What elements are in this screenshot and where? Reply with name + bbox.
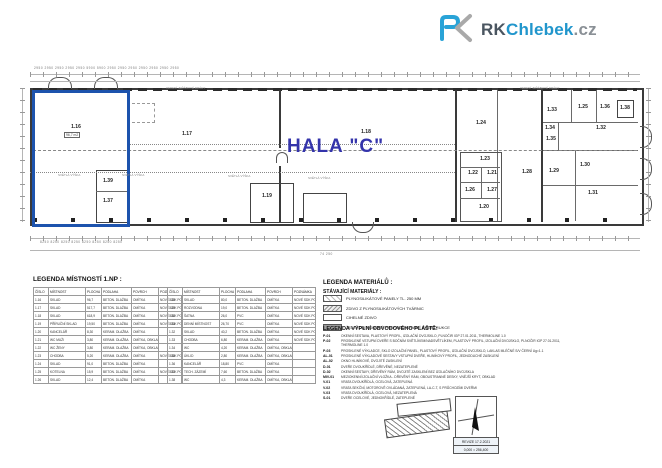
- table-cell: OMÍTKA, OBKLAD: [132, 344, 159, 352]
- table-row: 1.26SKLAD12,4BETON. DLAŽBAOMÍTKA: [34, 376, 182, 384]
- table-row: 1.34WC4,20KERAM. DLAŽBAOMÍTKA, OBKLAD: [168, 344, 316, 352]
- fills-list: P-01OKENNÍ SESTAVA, PLASTOVÝ PROFIL, IZO…: [323, 334, 573, 402]
- table-cell: OMÍTKA, OBKLAD: [266, 376, 293, 384]
- table-cell: 1.34: [168, 344, 183, 352]
- table-cell: SKLAD: [49, 376, 86, 384]
- room-label: 1.18: [361, 129, 371, 135]
- table-cell: SKLAD: [49, 296, 86, 304]
- fill-item: AL-01PROSKLENÉ VÝKLADOVÉ SESTAVY VSTUPNÍ…: [323, 354, 573, 358]
- fill-code: V-02: [323, 386, 337, 390]
- floorplan-page: RKChlebek.cz HALA "C" 96,7 m2 1.: [0, 0, 662, 468]
- wall: [460, 167, 500, 168]
- fill-desc: DVEŘE DVOUKŘÍDLÉ, DŘEVĚNÉ, NEZATEPLENÉ: [341, 365, 418, 369]
- table-cell: SKLAD: [49, 360, 86, 368]
- fill-code: V-03: [323, 391, 337, 395]
- fill-item: P-01OKENNÍ SESTAVA, PLASTOVÝ PROFIL, IZO…: [323, 334, 573, 338]
- table-cell: OMÍTKA, OBKLAD: [266, 344, 293, 352]
- rkchlebek-logo[interactable]: RKChlebek.cz: [437, 12, 597, 48]
- table-cell: KANCELÁŘ: [49, 328, 86, 336]
- level-datum-label: 0,000 = 256,400: [453, 445, 499, 454]
- table-row: 1.32SKLAD40,2BETON. DLAŽBAOMÍTKANOVÉ SDK…: [168, 328, 316, 336]
- fill-code: P-01: [323, 334, 337, 338]
- table-cell: NOVÉ SDK PODHL.: [293, 312, 316, 320]
- table-cell: OMÍTKA: [132, 296, 159, 304]
- table-cell: ŠATNA: [183, 312, 220, 320]
- room-label: 1.24: [476, 120, 486, 126]
- wall: [571, 90, 572, 122]
- table-row: 1.31DENNÍ MÍSTNOST26,70PVCOMÍTKANOVÉ SDK…: [168, 320, 316, 328]
- table-cell: 7,60: [220, 368, 236, 376]
- table-cell: WC MUŽI: [49, 336, 86, 344]
- table-cell: 1.35: [168, 352, 183, 360]
- wall: [596, 90, 597, 122]
- table-cell: BETON. DLAŽBA: [236, 328, 266, 336]
- table-row: 1.20KANCELÁŘ8,30KERAM. DLAŽBAOMÍTKA: [34, 328, 182, 336]
- table-row: 1.38WC4,3KERAM. DLAŽBAOMÍTKA, OBKLAD: [168, 376, 316, 384]
- wall: [460, 198, 500, 199]
- room-label: 1.33: [547, 107, 557, 113]
- plan-note: VEDENÍ JEŘÁBOVÉ DRÁHY: [520, 86, 559, 90]
- rooms-col-header: ČÍSLO: [168, 288, 183, 296]
- fill-item: V-03VRATA DVOUKŘÍDLÁ, OCELOVÁ, NEZATEPLE…: [323, 391, 573, 395]
- material-swatch: [323, 295, 342, 302]
- table-cell: 18,80: [220, 360, 236, 368]
- table-row: 1.21WC MUŽI3,80KERAM. DLAŽBAOMÍTKA, OBKL…: [34, 336, 182, 344]
- table-row: 1.29ROZVODNA19,0BETON. DLAŽBAOMÍTKANOVÉ …: [168, 304, 316, 312]
- table-cell: KOTELNA: [49, 368, 86, 376]
- table-cell: 3,80: [86, 344, 102, 352]
- table-cell: OMÍTKA, OBKLAD: [132, 336, 159, 344]
- fill-item: P-03PROSKLENÉ VÝKLADCE, SKLO IZOLAČNÍ PA…: [323, 349, 573, 353]
- wall: [541, 90, 543, 222]
- wall: [543, 185, 638, 186]
- table-cell: 19,0: [220, 304, 236, 312]
- room-label: 1.31: [588, 190, 598, 196]
- fill-item: D-02OKENNÍ SESTAVY, DŘEVĚNÝ RÁM, DVOJITÉ…: [323, 370, 573, 374]
- table-cell: 4,20: [220, 344, 236, 352]
- dim-line: [30, 250, 640, 251]
- rooms-col-header: PODLAHA: [102, 288, 132, 296]
- rooms-col-header: PODLAHA: [236, 288, 266, 296]
- fill-item: P-02PROSKLENÉ VSTUPNÍ DVEŘE S BOČNÍM SVĚ…: [323, 339, 573, 347]
- fill-code: AL-01: [323, 354, 337, 358]
- dim-numbers-top: 2950 2950 2950 2950 2950 5900 5900 2950 …: [34, 66, 634, 70]
- material-swatch: [323, 314, 342, 321]
- table-cell: OMÍTKA: [266, 360, 293, 368]
- table-cell: 5,20: [86, 352, 102, 360]
- plan-note: SVĚTLÁ VÝŠKA: [308, 176, 330, 180]
- skylight-rect: [127, 103, 155, 123]
- rooms-col-header: PLOCHA: [86, 288, 102, 296]
- room-label: 1.36: [600, 104, 610, 110]
- legend-materials-title: LEGENDA MATERIÁLŮ :: [323, 280, 392, 286]
- table-row: 1.18SKLAD618,9BETON. DLAŽBAOMÍTKANOVÉ SD…: [34, 312, 182, 320]
- highlighted-unit-outline[interactable]: [32, 90, 130, 227]
- table-cell: SKLAD: [183, 328, 220, 336]
- fill-desc: MEZIOKENNÍ IZOLAČNÍ VLOŽKA - DŘEVĚNÝ RÁM…: [341, 375, 495, 379]
- fill-code: P-03: [323, 349, 337, 353]
- fill-desc: PROSKLENÉ VSTUPNÍ DVEŘE S BOČNÍM SVĚTLÍK…: [341, 339, 573, 347]
- table-cell: NOVÉ SDK PODHL.: [293, 336, 316, 344]
- table-cell: [293, 344, 316, 352]
- room-label: 1.17: [182, 131, 192, 137]
- table-cell: 91,0: [86, 360, 102, 368]
- table-cell: OMÍTKA: [132, 328, 159, 336]
- table-cell: 1.18: [34, 312, 49, 320]
- table-cell: OMÍTKA: [266, 368, 293, 376]
- table-row: 1.17SKLAD517,7BETON. DLAŽBAOMÍTKANOVÉ SD…: [34, 304, 182, 312]
- table-cell: OMÍTKA: [266, 336, 293, 344]
- table-cell: ROZVODNA: [183, 304, 220, 312]
- table-cell: OMÍTKA: [132, 360, 159, 368]
- wall: [455, 90, 457, 222]
- table-cell: 26,0: [220, 312, 236, 320]
- table-cell: OMÍTKA: [266, 312, 293, 320]
- table-cell: OMÍTKA: [266, 320, 293, 328]
- table-cell: [293, 376, 316, 384]
- table-cell: KERAM. DLAŽBA: [102, 352, 132, 360]
- rooms-col-header: MÍSTNOST: [49, 288, 86, 296]
- material-item: ZDIVO Z PLYNOSILIKÁTOVÝCH TVÁRNIC: [323, 305, 573, 312]
- rooms-col-header: POVRCH: [132, 288, 159, 296]
- table-cell: 1.20: [34, 328, 49, 336]
- wall: [481, 167, 482, 198]
- table-cell: KERAM. DLAŽBA: [236, 344, 266, 352]
- table-cell: 1.22: [34, 344, 49, 352]
- room-box: [250, 183, 294, 223]
- table-cell: NOVÉ SDK PODHL.: [293, 320, 316, 328]
- room-label: 1.29: [549, 168, 559, 174]
- fill-desc: PROSKLENÉ VÝKLADCE, SKLO IZOLAČNÍ PANEL,…: [341, 349, 543, 353]
- table-cell: DENNÍ MÍSTNOST: [183, 320, 220, 328]
- table-cell: KERAM. DLAŽBA: [236, 376, 266, 384]
- room-label: 1.22: [468, 170, 478, 176]
- fill-desc: OKNO HLINÍKOVÉ, DVOJITÉ ZASKLENÍ: [341, 359, 402, 363]
- room-label: 1.39: [103, 178, 113, 184]
- table-cell: 1.17: [34, 304, 49, 312]
- wall: [279, 90, 281, 148]
- material-label: ZDIVO Z PLYNOSILIKÁTOVÝCH TVÁRNIC: [346, 306, 424, 311]
- area-note-1-16: 96,7 m2: [64, 132, 80, 138]
- logo-chlebek: Chlebek: [506, 20, 574, 39]
- table-cell: SKLAD: [183, 296, 220, 304]
- table-cell: [293, 368, 316, 376]
- fill-desc: VRATA DVOUKŘÍDLÁ, OCELOVÁ, ZATEPLENÁ: [341, 380, 412, 384]
- table-cell: 1.28: [168, 296, 183, 304]
- table-cell: 96,7: [86, 296, 102, 304]
- rooms-col-header: MÍSTNOST: [183, 288, 220, 296]
- table-cell: 3,80: [86, 336, 102, 344]
- room-box: [303, 193, 347, 223]
- table-row: 1.35ÚKLID2,80KERAM. DLAŽBAOMÍTKA, OBKLAD: [168, 352, 316, 360]
- table-cell: 1.25: [34, 368, 49, 376]
- table-cell: BETON. DLAŽBA: [236, 368, 266, 376]
- table-cell: 1.21: [34, 336, 49, 344]
- table-row: 1.37TECH. ZÁZEMÍ7,60BETON. DLAŽBAOMÍTKA: [168, 368, 316, 376]
- table-row: 1.22WC ŽENY3,80KERAM. DLAŽBAOMÍTKA, OBKL…: [34, 344, 182, 352]
- dim-numbers-bottom: 8250 8250 8250 8250 8250 8250 8250 8250: [40, 240, 630, 244]
- table-cell: 4,3: [220, 376, 236, 384]
- room-label: 1.34: [545, 125, 555, 131]
- table-cell: PVC: [236, 312, 266, 320]
- logo-wordmark: RKChlebek.cz: [481, 20, 597, 40]
- door-arc: [352, 222, 374, 233]
- fill-code: S-01: [323, 396, 337, 400]
- table-cell: KERAM. DLAŽBA: [102, 344, 132, 352]
- table-cell: 80,0: [220, 296, 236, 304]
- rooms-table-right: ČÍSLOMÍSTNOSTPLOCHAPODLAHAPOVRCHPOZNÁMKA…: [167, 287, 316, 384]
- table-cell: KERAM. DLAŽBA: [102, 328, 132, 336]
- room-label: 1.25: [578, 104, 588, 110]
- logo-cz: .cz: [574, 20, 597, 39]
- fill-desc: VRATA DVOUKŘÍDLÁ, OCELOVÁ, NEZATEPLENÁ: [341, 391, 417, 395]
- table-cell: BETON. DLAŽBA: [102, 304, 132, 312]
- room-label: 1.28: [522, 169, 532, 175]
- table-cell: OMÍTKA: [132, 304, 159, 312]
- dim-total: 74 250: [320, 252, 333, 256]
- fill-item: V-02VRATA SEKČNÍ, MOTOROVĚ OVLÁDANÁ, ZAT…: [323, 386, 573, 390]
- material-swatch: [323, 305, 342, 312]
- table-row: 1.19PŘÍRUČNÍ SKLAD19,50BETON. DLAŽBAOMÍT…: [34, 320, 182, 328]
- table-cell: CHODBA: [49, 352, 86, 360]
- rooms-col-header: POVRCH: [266, 288, 293, 296]
- table-cell: 1.24: [34, 360, 49, 368]
- plan-note: SVĚTLÁ VÝŠKA: [58, 173, 80, 177]
- table-cell: 1.37: [168, 368, 183, 376]
- table-cell: OMÍTKA: [132, 376, 159, 384]
- plan-note: VEDENÍ JEŘÁBOVÉ DRÁHY: [166, 86, 205, 90]
- table-cell: 1.23: [34, 352, 49, 360]
- fill-item: D-01DVEŘE DVOUKŘÍDLÉ, DŘEVĚNÉ, NEZATEPLE…: [323, 365, 573, 369]
- table-cell: 1.33: [168, 336, 183, 344]
- room-label: 1.23: [480, 156, 490, 162]
- table-cell: 1.36: [168, 360, 183, 368]
- table-cell: KANCELÁŘ: [183, 360, 220, 368]
- room-label: 1.35: [546, 136, 556, 142]
- dim-ticks-left: [20, 88, 25, 222]
- rooms-col-header: POZNÁMKA: [293, 288, 316, 296]
- table-cell: BETON. DLAŽBA: [236, 304, 266, 312]
- table-cell: 1.32: [168, 328, 183, 336]
- material-item: PLYNOSILIKÁTOVÉ PANELY TL. 250 MM: [323, 295, 573, 302]
- wall: [575, 151, 576, 221]
- rooms-col-header: ČÍSLO: [34, 288, 49, 296]
- table-cell: 1.38: [168, 376, 183, 384]
- table-cell: TECH. ZÁZEMÍ: [183, 368, 220, 376]
- dim-ticks: [30, 72, 640, 77]
- wall-section-detail-hatched: [384, 411, 450, 439]
- wall: [460, 182, 500, 183]
- room-label: 1.20: [479, 204, 489, 210]
- table-cell: 1.31: [168, 320, 183, 328]
- material-item: CIHELNÉ ZDIVO: [323, 314, 573, 321]
- fill-desc: OKENNÍ SESTAVA, PLASTOVÝ PROFIL, IZOLAČN…: [341, 334, 506, 338]
- table-row: 1.16SKLAD96,7BETON. DLAŽBAOMÍTKANOVÉ SDK…: [34, 296, 182, 304]
- plan-note: SVĚTLÁ VÝŠKA: [122, 173, 144, 177]
- table-row: 1.33CHODBA6,80KERAM. DLAŽBAOMÍTKANOVÉ SD…: [168, 336, 316, 344]
- table-cell: [293, 360, 316, 368]
- table-row: 1.23CHODBA5,20KERAM. DLAŽBAOMÍTKANOVÉ SD…: [34, 352, 182, 360]
- table-cell: KERAM. DLAŽBA: [102, 336, 132, 344]
- table-cell: BETON. DLAŽBA: [102, 368, 132, 376]
- fill-desc: PROSKLENÉ VÝKLADOVÉ SESTAVY VSTUPNÍ DVEŘ…: [341, 354, 499, 358]
- room-label: 1.32: [596, 125, 606, 131]
- gate-arc: [94, 77, 118, 89]
- table-cell: PVC: [236, 360, 266, 368]
- room-label: 1.37: [103, 198, 113, 204]
- table-cell: NOVÉ SDK PODHL.: [293, 296, 316, 304]
- table-cell: 12,4: [86, 376, 102, 384]
- fill-item: AL-02OKNO HLINÍKOVÉ, DVOJITÉ ZASKLENÍ: [323, 359, 573, 363]
- dim-ticks-right: [646, 88, 651, 222]
- table-cell: BETON. DLAŽBA: [102, 320, 132, 328]
- legend-fills-title: LEGENDA VÝPLNÍ OBVODOVÉHO PLÁŠTĚ:: [323, 326, 438, 332]
- fill-code: AL-02: [323, 359, 337, 363]
- table-cell: NOVÉ SDK PODHL.: [293, 328, 316, 336]
- fill-desc: DVEŘE OCELOVÉ, JEDNOKŘÍDLÉ, ZATEPLENÉ: [341, 396, 415, 400]
- table-cell: NOVÉ SDK PODHL.: [293, 304, 316, 312]
- fill-code: MIV-01: [323, 375, 337, 379]
- table-cell: 1.29: [168, 304, 183, 312]
- table-cell: BETON. DLAŽBA: [102, 376, 132, 384]
- table-cell: OMÍTKA: [266, 296, 293, 304]
- room-label: 1.27: [487, 187, 497, 193]
- rk-monogram-icon: [437, 12, 475, 49]
- table-row: 1.28SKLAD80,0BETON. DLAŽBAOMÍTKANOVÉ SDK…: [168, 296, 316, 304]
- plan-note: SVĚTLÁ VÝŠKA: [228, 174, 250, 178]
- table-cell: 1.16: [34, 296, 49, 304]
- table-cell: 15,9: [86, 368, 102, 376]
- table-cell: PŘÍRUČNÍ SKLAD: [49, 320, 86, 328]
- table-cell: OMÍTKA: [132, 352, 159, 360]
- table-cell: WC ŽENY: [49, 344, 86, 352]
- table-cell: 8,30: [86, 328, 102, 336]
- fill-code: P-02: [323, 339, 337, 347]
- fill-desc: OKENNÍ SESTAVY, DŘEVĚNÝ RÁM, DVOJITÉ ZAS…: [341, 370, 474, 374]
- table-cell: OMÍTKA: [132, 320, 159, 328]
- table-cell: BETON. DLAŽBA: [236, 296, 266, 304]
- room-label: 1.21: [487, 170, 497, 176]
- table-cell: 19,50: [86, 320, 102, 328]
- room-label: 1.26: [465, 187, 475, 193]
- material-label: CIHELNÉ ZDIVO: [346, 315, 377, 320]
- table-cell: OMÍTKA: [132, 368, 159, 376]
- table-cell: CHODBA: [183, 336, 220, 344]
- table-cell: WC: [183, 344, 220, 352]
- table-cell: 40,2: [220, 328, 236, 336]
- room-label: 1.30: [580, 162, 590, 168]
- fill-desc: VRATA SEKČNÍ, MOTOROVĚ OVLÁDANÁ, ZATEPLE…: [341, 386, 477, 390]
- table-cell: OMÍTKA: [132, 312, 159, 320]
- table-row: 1.30ŠATNA26,0PVCOMÍTKANOVÉ SDK PODHL.: [168, 312, 316, 320]
- table-row: 1.24SKLAD91,0BETON. DLAŽBAOMÍTKA: [34, 360, 182, 368]
- table-cell: KERAM. DLAŽBA: [236, 352, 266, 360]
- table-cell: ÚKLID: [183, 352, 220, 360]
- room-label: 1.19: [262, 193, 272, 199]
- gate-arc: [48, 77, 72, 89]
- room-label: 1.16: [71, 124, 81, 130]
- table-cell: SKLAD: [49, 304, 86, 312]
- fill-item: V-01VRATA DVOUKŘÍDLÁ, OCELOVÁ, ZATEPLENÁ: [323, 380, 573, 384]
- table-cell: [293, 352, 316, 360]
- table-row: 1.36KANCELÁŘ18,80PVCOMÍTKA: [168, 360, 316, 368]
- table-cell: 517,7: [86, 304, 102, 312]
- table-cell: 2,80: [220, 352, 236, 360]
- logo-rk: RK: [481, 20, 506, 39]
- hall-name-label: HALA "C": [287, 136, 384, 158]
- table-cell: 618,9: [86, 312, 102, 320]
- table-cell: OMÍTKA: [266, 328, 293, 336]
- table-row: 1.25KOTELNA15,9BETON. DLAŽBAOMÍTKANOVÉ S…: [34, 368, 182, 376]
- table-cell: 26,70: [220, 320, 236, 328]
- table-cell: WC: [183, 376, 220, 384]
- rooms-col-header: PLOCHA: [220, 288, 236, 296]
- material-label: PLYNOSILIKÁTOVÉ PANELY TL. 250 MM: [346, 296, 421, 301]
- wall: [558, 122, 559, 150]
- table-cell: 6,80: [220, 336, 236, 344]
- room-label: 1.38: [620, 105, 630, 111]
- rooms-table-left: ČÍSLOMÍSTNOSTPLOCHAPODLAHAPOVRCHPOZNÁMKA…: [33, 287, 182, 384]
- fill-item: MIV-01MEZIOKENNÍ IZOLAČNÍ VLOŽKA - DŘEVĚ…: [323, 375, 573, 379]
- table-cell: 1.30: [168, 312, 183, 320]
- table-cell: PVC: [236, 320, 266, 328]
- fill-code: D-01: [323, 365, 337, 369]
- dim-line: [30, 81, 640, 82]
- table-cell: KERAM. DLAŽBA: [236, 336, 266, 344]
- table-cell: OMÍTKA: [266, 304, 293, 312]
- fill-code: V-01: [323, 380, 337, 384]
- table-cell: BETON. DLAŽBA: [102, 296, 132, 304]
- table-cell: 1.26: [34, 376, 49, 384]
- table-cell: BETON. DLAŽBA: [102, 360, 132, 368]
- table-cell: 1.19: [34, 320, 49, 328]
- table-cell: OMÍTKA, OBKLAD: [266, 352, 293, 360]
- north-orientation-box: [455, 396, 497, 438]
- table-cell: BETON. DLAŽBA: [102, 312, 132, 320]
- table-cell: SKLAD: [49, 312, 86, 320]
- fill-code: D-02: [323, 370, 337, 374]
- legend-rooms-title: LEGENDA MÍSTNOSTÍ 1.NP :: [33, 276, 122, 283]
